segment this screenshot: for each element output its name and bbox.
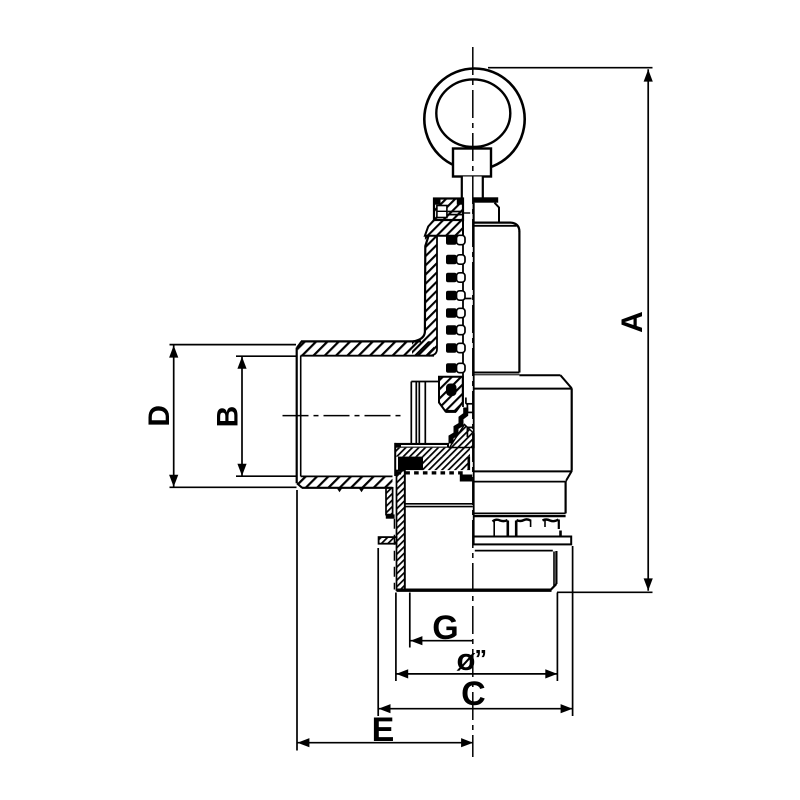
svg-text:”: ” <box>475 646 488 674</box>
svg-text:B: B <box>212 406 245 428</box>
svg-text:E: E <box>372 711 395 749</box>
svg-text:D: D <box>143 405 176 427</box>
svg-text:G: G <box>432 609 458 647</box>
svg-text:A: A <box>616 311 649 333</box>
